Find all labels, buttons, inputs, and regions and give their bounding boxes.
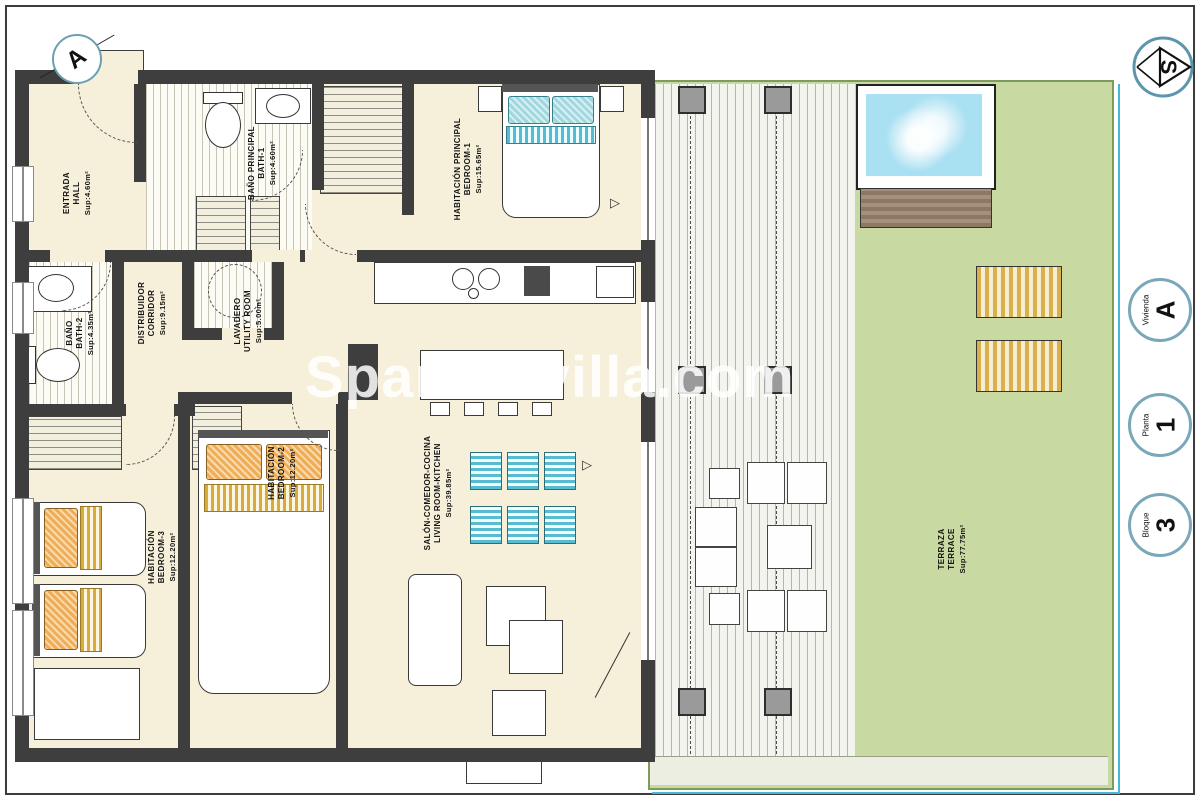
pillow: [44, 508, 78, 568]
terrace-column: [764, 688, 792, 716]
compass-icon: S: [1130, 34, 1196, 100]
section-marker: A: [52, 34, 102, 84]
bed-headboard: [502, 84, 598, 92]
bed-runner: [80, 588, 102, 652]
terrace-column: [678, 366, 706, 394]
sun-lounger: [976, 340, 1062, 392]
bed-runner: [204, 484, 324, 512]
badge-value: 3: [1152, 518, 1178, 532]
dresser: [34, 668, 140, 740]
terrace-walkway: [650, 756, 1108, 785]
window: [12, 610, 34, 716]
badge-value: A: [1152, 301, 1178, 320]
window: [12, 166, 34, 222]
window: [12, 282, 34, 334]
pillow: [206, 444, 262, 480]
bar-stool: [498, 402, 518, 416]
badge-label: Bloque: [1142, 513, 1150, 538]
bedroom3-closet: [20, 416, 122, 470]
toilet: [205, 102, 241, 148]
hob-burner: [452, 268, 474, 290]
wall-right: [641, 392, 655, 442]
badge-bloque: Bloque 3: [1128, 493, 1192, 557]
washing-machine: [208, 264, 262, 318]
badge-content: Vivienda A: [1142, 295, 1178, 326]
door-triangle-marker: ▷: [610, 196, 620, 209]
badge-planta: Planta 1: [1128, 393, 1192, 457]
window: [12, 498, 34, 604]
badge-label: Planta: [1142, 414, 1150, 437]
hob-knob: [468, 288, 479, 299]
glass-door-kitchen: [641, 302, 655, 392]
wall-bath1-closet: [312, 70, 324, 190]
glass-door-bedroom1: [641, 118, 655, 240]
dining-chair: [507, 506, 539, 544]
dining-chair: [470, 452, 502, 490]
bar-stool: [430, 402, 450, 416]
wall-bottom: [15, 748, 655, 762]
door-gap-bedroom2: [292, 392, 338, 404]
pillow: [508, 96, 550, 124]
dining-chair: [544, 452, 576, 490]
pillow: [266, 444, 322, 480]
bar-stool: [532, 402, 552, 416]
wall-right: [641, 660, 655, 762]
bed-runner: [506, 126, 596, 144]
pool-wood-deck: [860, 188, 992, 228]
corridor-closet: [250, 196, 280, 252]
door-gap-bath1: [252, 250, 300, 262]
terrace-step: [466, 760, 542, 784]
kitchen-island: [420, 350, 564, 400]
terrace-sofa-seat: [695, 547, 737, 587]
corridor-closet: [196, 196, 246, 252]
side-table: [509, 620, 563, 674]
glass-door-living: [641, 442, 655, 660]
pillow: [552, 96, 594, 124]
opening-hall-corridor: [50, 250, 105, 262]
terrace-sofa-seat: [695, 507, 737, 547]
terrace-armchair: [787, 462, 827, 504]
pillow: [44, 590, 78, 650]
living-pillar: [348, 344, 378, 400]
bar-stool: [464, 402, 484, 416]
wall-bedroom2-left: [178, 392, 190, 762]
dining-chair: [544, 506, 576, 544]
pool-water: [866, 94, 982, 176]
badge-value: 1: [1152, 418, 1178, 432]
compass-letter: S: [1156, 60, 1181, 75]
door-gap-utility: [222, 328, 264, 340]
terrace-armchair: [747, 590, 785, 632]
sofa: [408, 574, 462, 686]
terrace-column: [678, 688, 706, 716]
badge-content: Planta 1: [1142, 414, 1178, 437]
terrace-column: [678, 86, 706, 114]
badge-content: Bloque 3: [1142, 513, 1178, 538]
nightstand: [600, 86, 624, 112]
sink-basin: [266, 94, 300, 118]
bed-runner: [80, 506, 102, 570]
terrace-column: [764, 366, 792, 394]
structure-axis-line: [776, 86, 777, 754]
dining-chair: [507, 452, 539, 490]
badge-vivienda: Vivienda A: [1128, 278, 1192, 342]
section-letter: A: [62, 43, 93, 76]
structure-axis-line: [690, 86, 691, 754]
terrace-table: [767, 525, 812, 569]
tv-unit: [492, 690, 546, 736]
toilet: [36, 348, 80, 382]
terrace-decking: [655, 84, 855, 756]
door-triangle-marker: ▷: [582, 458, 592, 471]
door-gap-bedroom3: [126, 404, 174, 416]
wall-bedroom1-left: [402, 70, 414, 215]
sun-lounger: [976, 266, 1062, 318]
hob-burner: [478, 268, 500, 290]
fridge: [596, 266, 634, 298]
kitchen-sink: [524, 266, 550, 296]
dining-chair: [470, 506, 502, 544]
terrace-chair: [709, 468, 740, 499]
terrace-armchair: [787, 590, 827, 632]
badge-label: Vivienda: [1142, 295, 1150, 326]
terrace-chair: [709, 593, 740, 625]
wall-bath2-right: [112, 262, 124, 414]
wardrobe: [320, 86, 404, 194]
floor-plan-sheet: ▷ ▷ ENTRADA HALL Sup:4.60m² BAÑO PRINCIP…: [0, 0, 1200, 800]
wall-right: [641, 70, 655, 118]
terrace-armchair: [747, 462, 785, 504]
nightstand: [478, 86, 502, 112]
terrace-column: [764, 86, 792, 114]
